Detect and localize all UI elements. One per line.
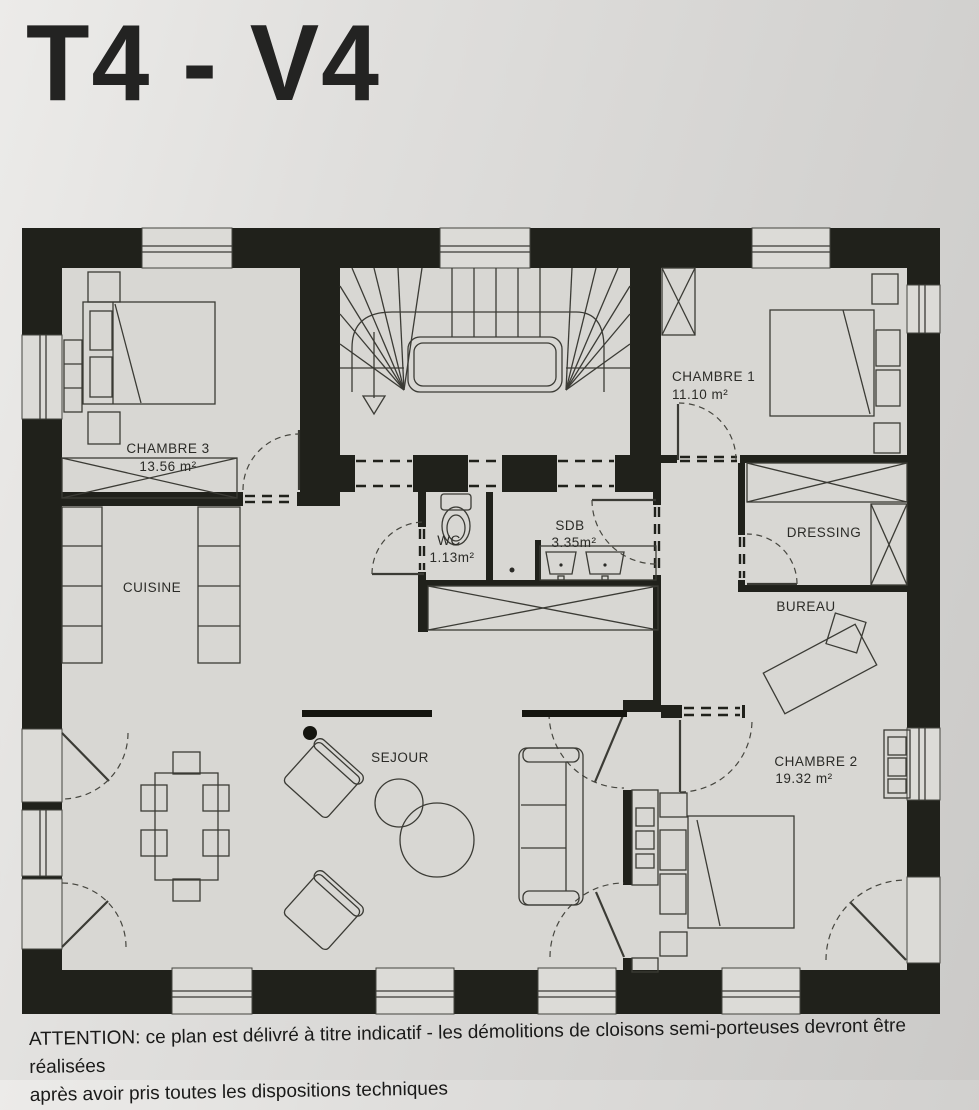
window-top-3 bbox=[752, 228, 830, 268]
window-right-chambre2 bbox=[907, 728, 940, 800]
chambre2-name: CHAMBRE 2 bbox=[774, 754, 857, 769]
window-top-1 bbox=[142, 228, 232, 268]
dressing-name: DRESSING bbox=[787, 525, 862, 540]
wc-name: WC bbox=[437, 533, 461, 548]
cuisine-name: CUISINE bbox=[123, 580, 181, 595]
window-left-sejour bbox=[22, 810, 62, 876]
window-top-2 bbox=[440, 228, 530, 268]
floor-plan-photo: { "title": "T4 - V4", "plan": { "rooms":… bbox=[0, 0, 979, 1080]
column-dot bbox=[303, 726, 317, 740]
hall-door-stop bbox=[510, 568, 515, 573]
sejour-name: SEJOUR bbox=[371, 750, 429, 765]
chambre3-area: 13.56 m² bbox=[139, 459, 196, 474]
sdb-name: SDB bbox=[555, 518, 584, 533]
window-bottom-3 bbox=[538, 968, 616, 1014]
window-left-chambre3 bbox=[22, 335, 62, 419]
sdb-area: 3.35m² bbox=[551, 535, 596, 550]
attention-note: ATTENTION: ce plan est délivré à titre i… bbox=[29, 1011, 970, 1110]
window-bottom-4 bbox=[722, 968, 800, 1014]
chambre1-name: CHAMBRE 1 bbox=[672, 369, 755, 384]
chambre3-name: CHAMBRE 3 bbox=[126, 441, 209, 456]
chambre1-area: 11.10 m² bbox=[672, 387, 728, 402]
bureau-name: BUREAU bbox=[776, 599, 835, 614]
window-right-chambre1 bbox=[907, 285, 940, 333]
window-bottom-2 bbox=[376, 968, 454, 1014]
window-bottom-1 bbox=[172, 968, 252, 1014]
wc-area: 1.13m² bbox=[429, 550, 474, 565]
chambre2-area: 19.32 m² bbox=[775, 771, 832, 786]
floor-plan-drawing: CHAMBRE 3 13.56 m² CHAMBRE 1 11.10 m² CU… bbox=[0, 0, 979, 1080]
